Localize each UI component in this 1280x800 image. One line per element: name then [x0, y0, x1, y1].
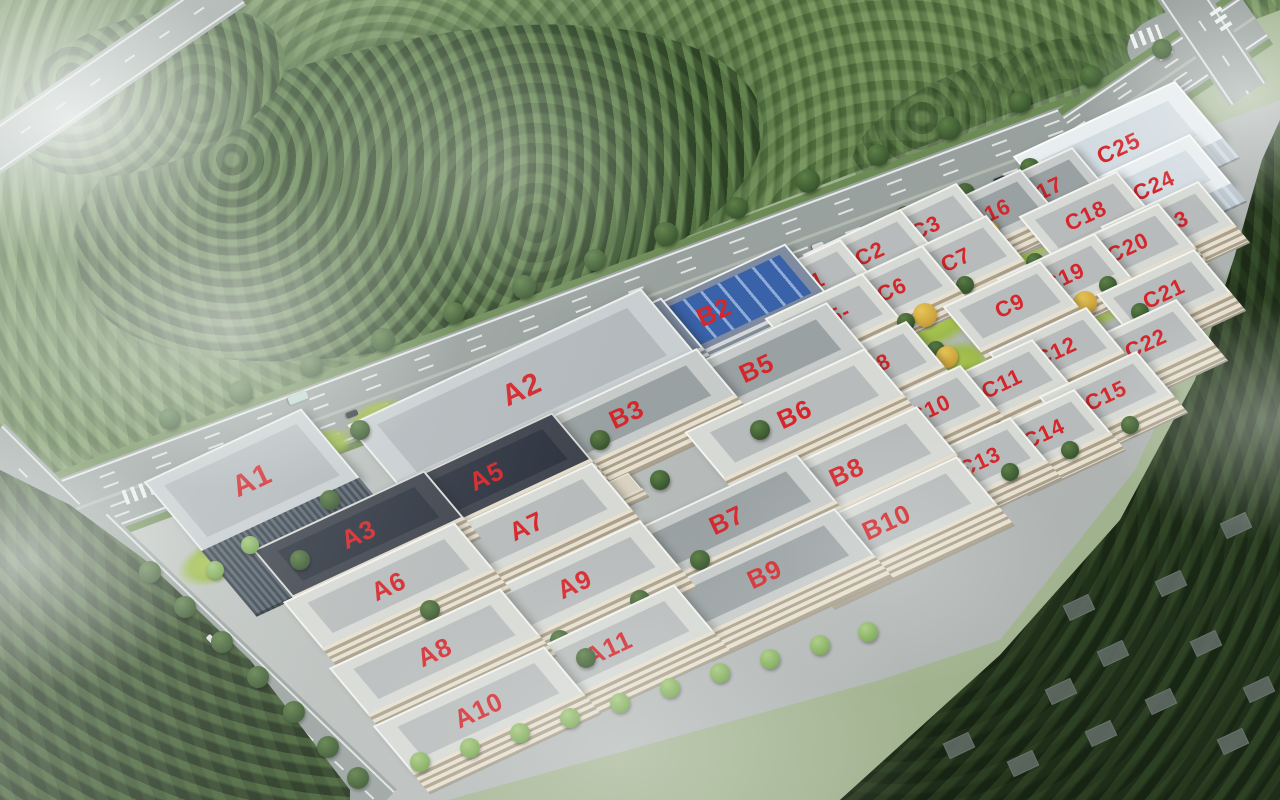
tree [1001, 463, 1019, 481]
tree [350, 420, 370, 440]
tree [584, 249, 606, 271]
tree [1152, 39, 1172, 59]
tree [937, 116, 961, 140]
tree [410, 752, 430, 772]
tree [610, 693, 630, 713]
tree [796, 169, 820, 193]
tree [510, 723, 530, 743]
tree [139, 561, 161, 583]
tree [576, 648, 596, 668]
tree [810, 635, 830, 655]
tree [206, 561, 224, 579]
tree [443, 302, 465, 324]
tree [211, 631, 233, 653]
tree [247, 666, 269, 688]
tree [1061, 441, 1079, 459]
tree [229, 380, 253, 404]
tree [347, 767, 369, 789]
tree [317, 736, 339, 758]
tree [320, 490, 340, 510]
tree [460, 738, 480, 758]
tree [301, 355, 323, 377]
tree [560, 708, 580, 728]
tree [660, 678, 680, 698]
tree [867, 144, 889, 166]
tree [512, 275, 536, 299]
tree [710, 663, 730, 683]
tree [371, 328, 395, 352]
tree [858, 622, 878, 642]
tree [283, 701, 305, 723]
tree [750, 420, 770, 440]
tree [290, 550, 310, 570]
tree [1080, 65, 1102, 87]
tree [726, 197, 748, 219]
tree [241, 536, 259, 554]
tree [590, 430, 610, 450]
tree [174, 596, 196, 618]
tree [913, 303, 937, 327]
aerial-site-rendering: A1A2A3A5A6A7A8A9A10A11B1B2B3B5B6B7B8B9B1… [0, 0, 1280, 800]
tree [760, 649, 780, 669]
tree [159, 408, 181, 430]
tree [650, 470, 670, 490]
tree [1009, 91, 1031, 113]
tree [654, 222, 678, 246]
tree [1121, 416, 1139, 434]
